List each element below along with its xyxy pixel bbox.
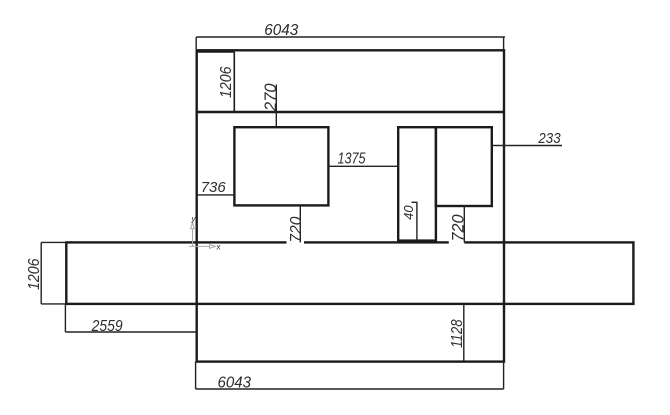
svg-text:2559: 2559: [91, 318, 123, 335]
svg-text:6043: 6043: [217, 374, 251, 391]
svg-text:720: 720: [288, 217, 305, 243]
svg-text:6043: 6043: [264, 22, 298, 39]
svg-text:1128: 1128: [449, 319, 466, 348]
svg-text:40: 40: [401, 205, 416, 220]
svg-text:233: 233: [538, 130, 562, 147]
svg-text:1206: 1206: [218, 66, 235, 98]
svg-text:1375: 1375: [338, 151, 366, 168]
svg-text:1206: 1206: [26, 258, 43, 290]
svg-text:736: 736: [201, 179, 227, 196]
svg-text:270: 270: [262, 83, 280, 112]
svg-text:720: 720: [448, 214, 467, 242]
